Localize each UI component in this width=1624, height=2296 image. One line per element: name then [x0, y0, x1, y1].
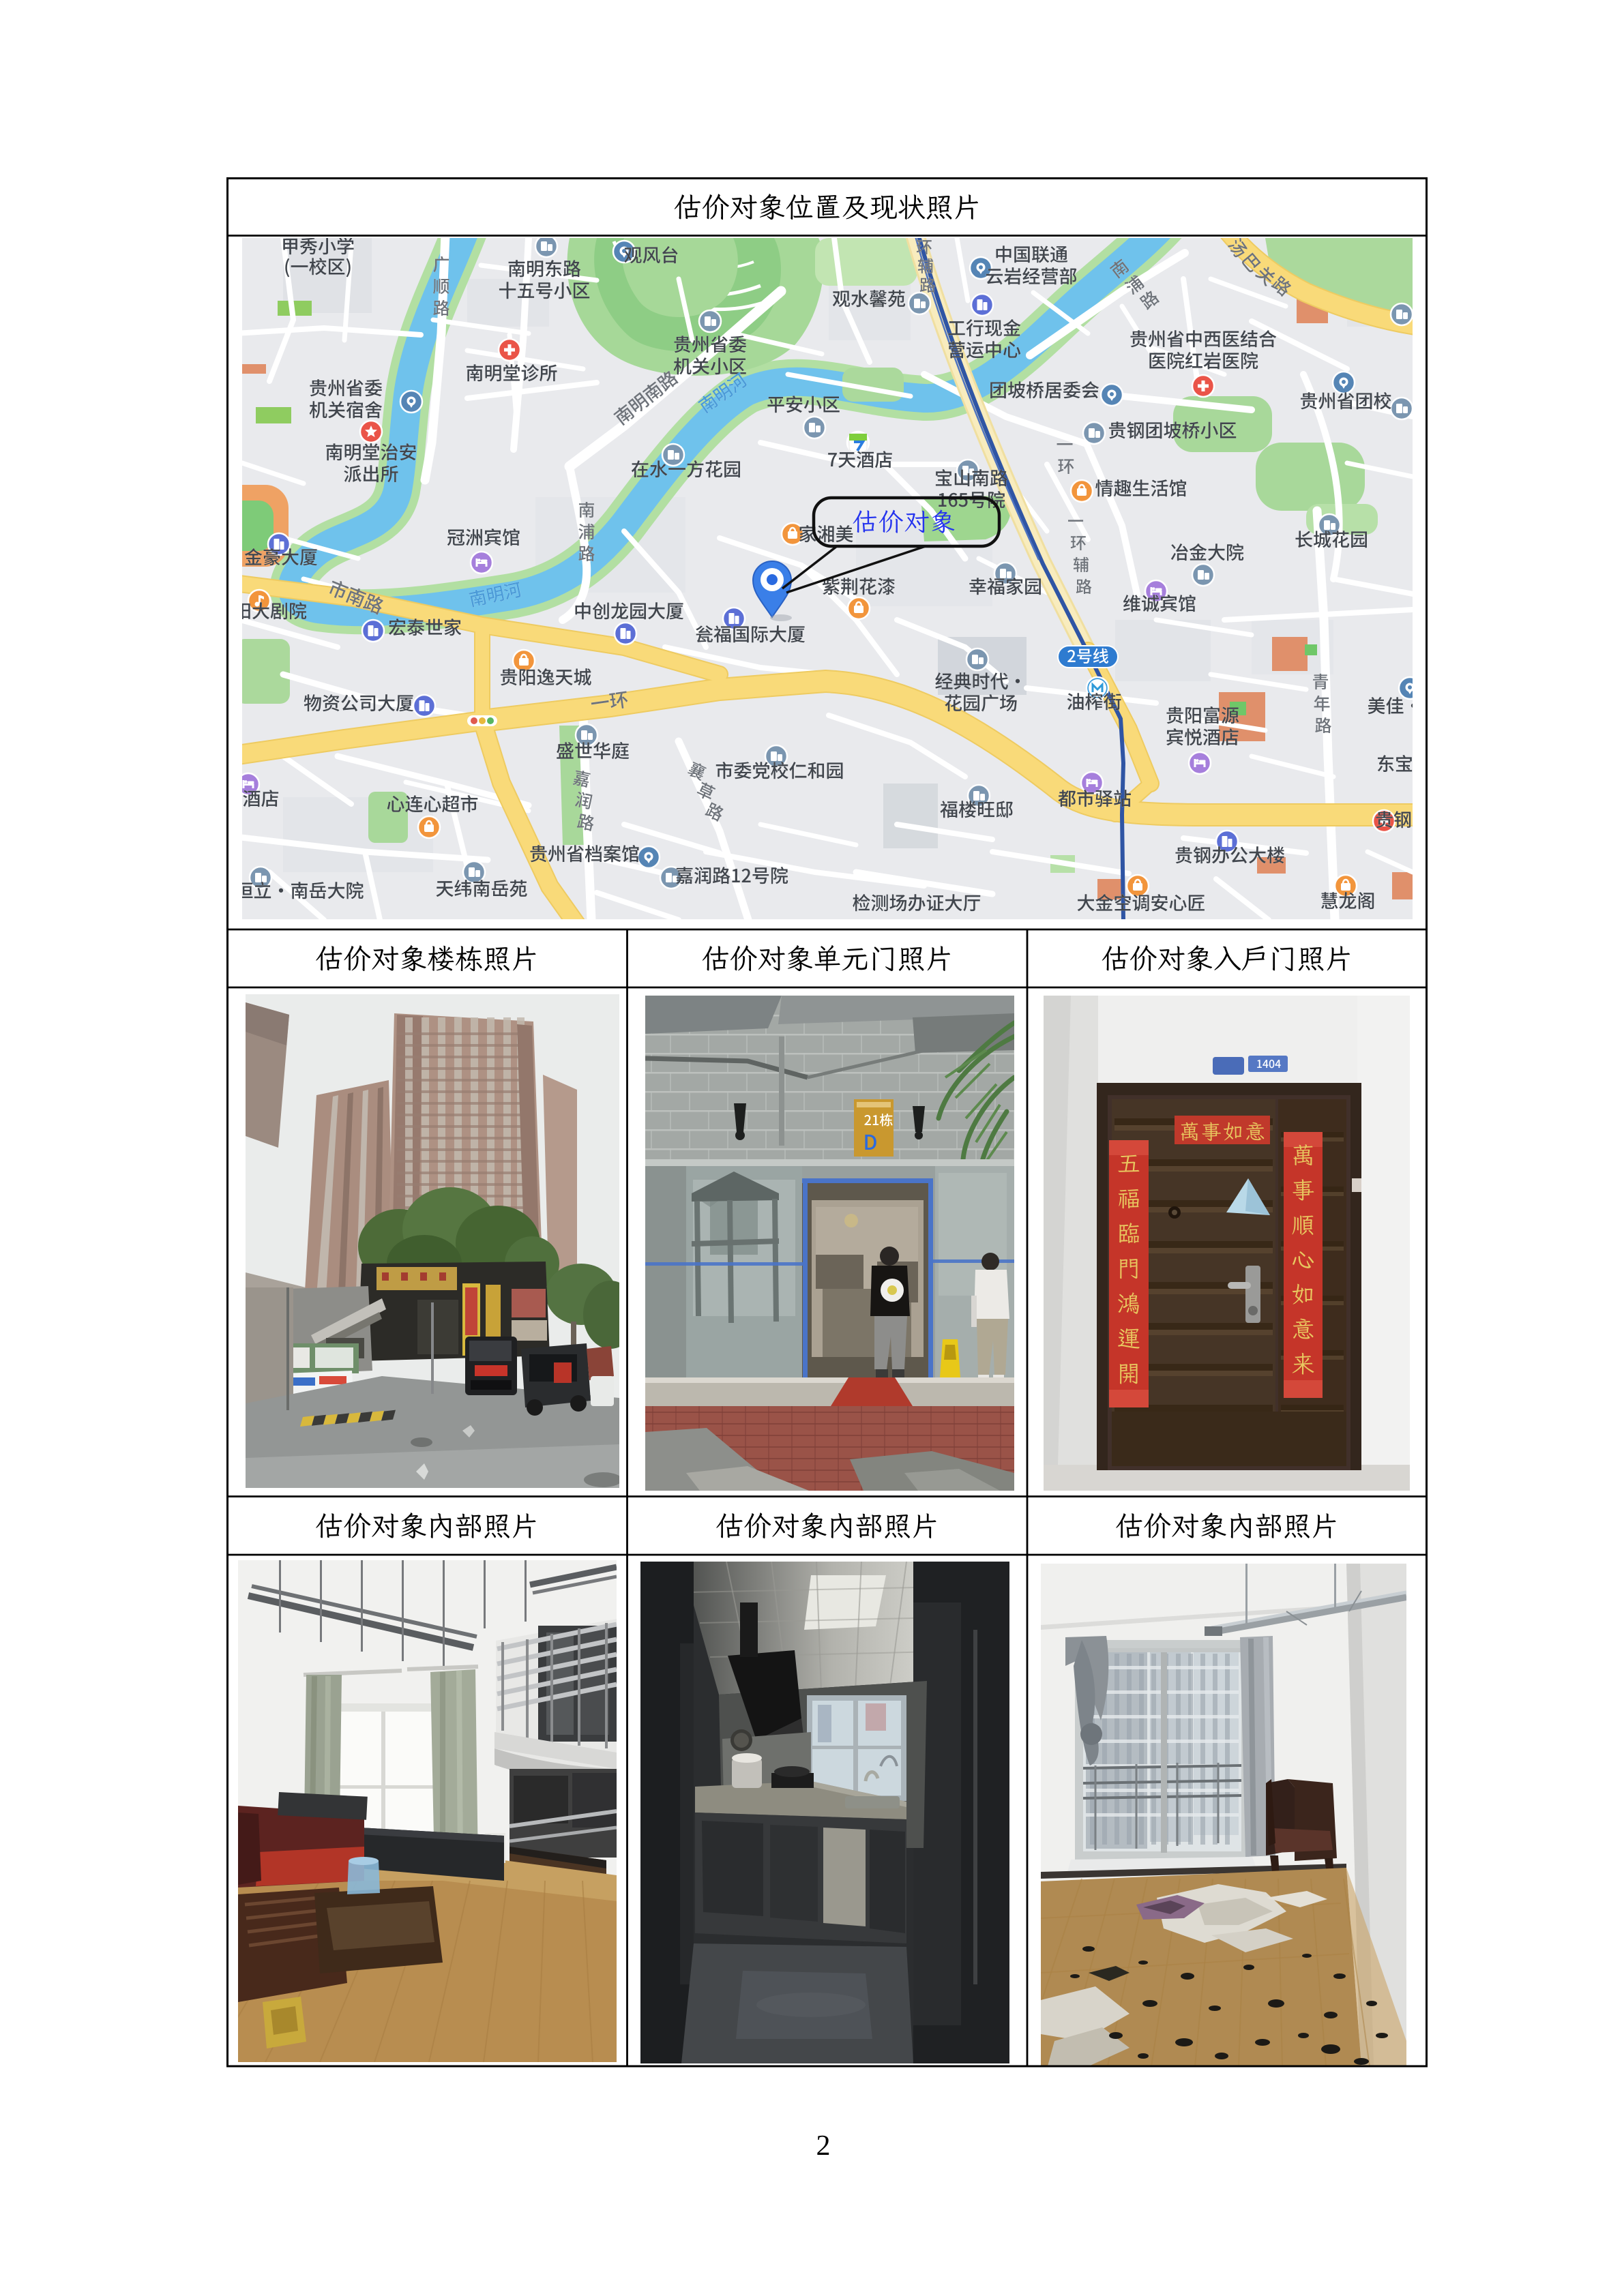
svg-text:2: 2: [816, 2130, 831, 2162]
